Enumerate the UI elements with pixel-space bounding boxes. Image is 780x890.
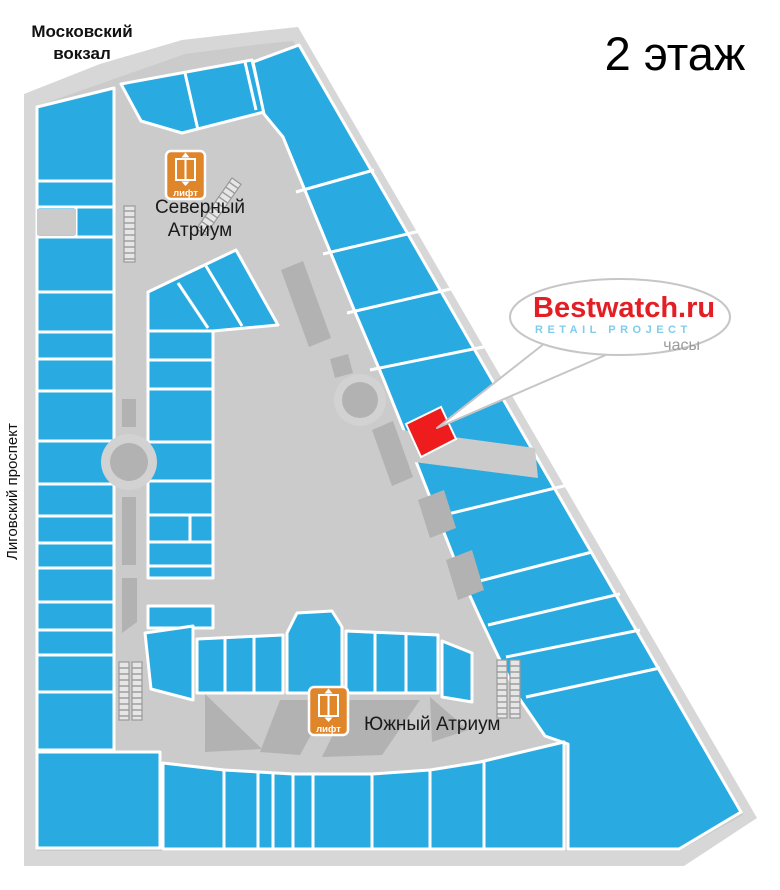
street-label: Лиговский проспект xyxy=(4,423,21,560)
store-south-e xyxy=(442,641,472,702)
north-atrium-label-line2: Атриум xyxy=(168,220,233,241)
brand-subtitle: RETAIL PROJECT xyxy=(535,324,692,336)
store-south-c xyxy=(287,611,342,693)
floor-title: 2 этаж xyxy=(605,27,746,80)
brand-category: часы xyxy=(663,337,700,354)
store-inner-lower xyxy=(148,606,213,628)
mall-floorplan-page: лифт лифт Северный Атриум Южный Атриум М… xyxy=(0,0,780,890)
station-label-line1: Московский xyxy=(31,22,132,41)
elevator-north-icon: лифт xyxy=(166,151,205,199)
left-corridor-bar-1 xyxy=(122,399,136,427)
left-corridor-bar-2 xyxy=(122,497,136,565)
south-atrium-label: Южный Атриум xyxy=(364,714,500,735)
station-label-line2: вокзал xyxy=(53,44,111,63)
mall-map-canvas: лифт лифт Северный Атриум Южный Атриум М… xyxy=(0,0,780,890)
store-south-b xyxy=(197,635,283,693)
elevator-south-label: лифт xyxy=(316,724,341,735)
elevator-south-icon: лифт xyxy=(309,687,348,735)
store-south-d xyxy=(346,631,438,693)
escalator-north-icon xyxy=(124,206,135,262)
brand-name: Bestwatch.ru xyxy=(533,292,715,324)
north-atrium-label-line1: Северный xyxy=(155,197,245,218)
corridor-stub-west xyxy=(37,209,76,235)
store-bottom-left xyxy=(37,752,160,848)
store-south-a xyxy=(145,626,193,700)
